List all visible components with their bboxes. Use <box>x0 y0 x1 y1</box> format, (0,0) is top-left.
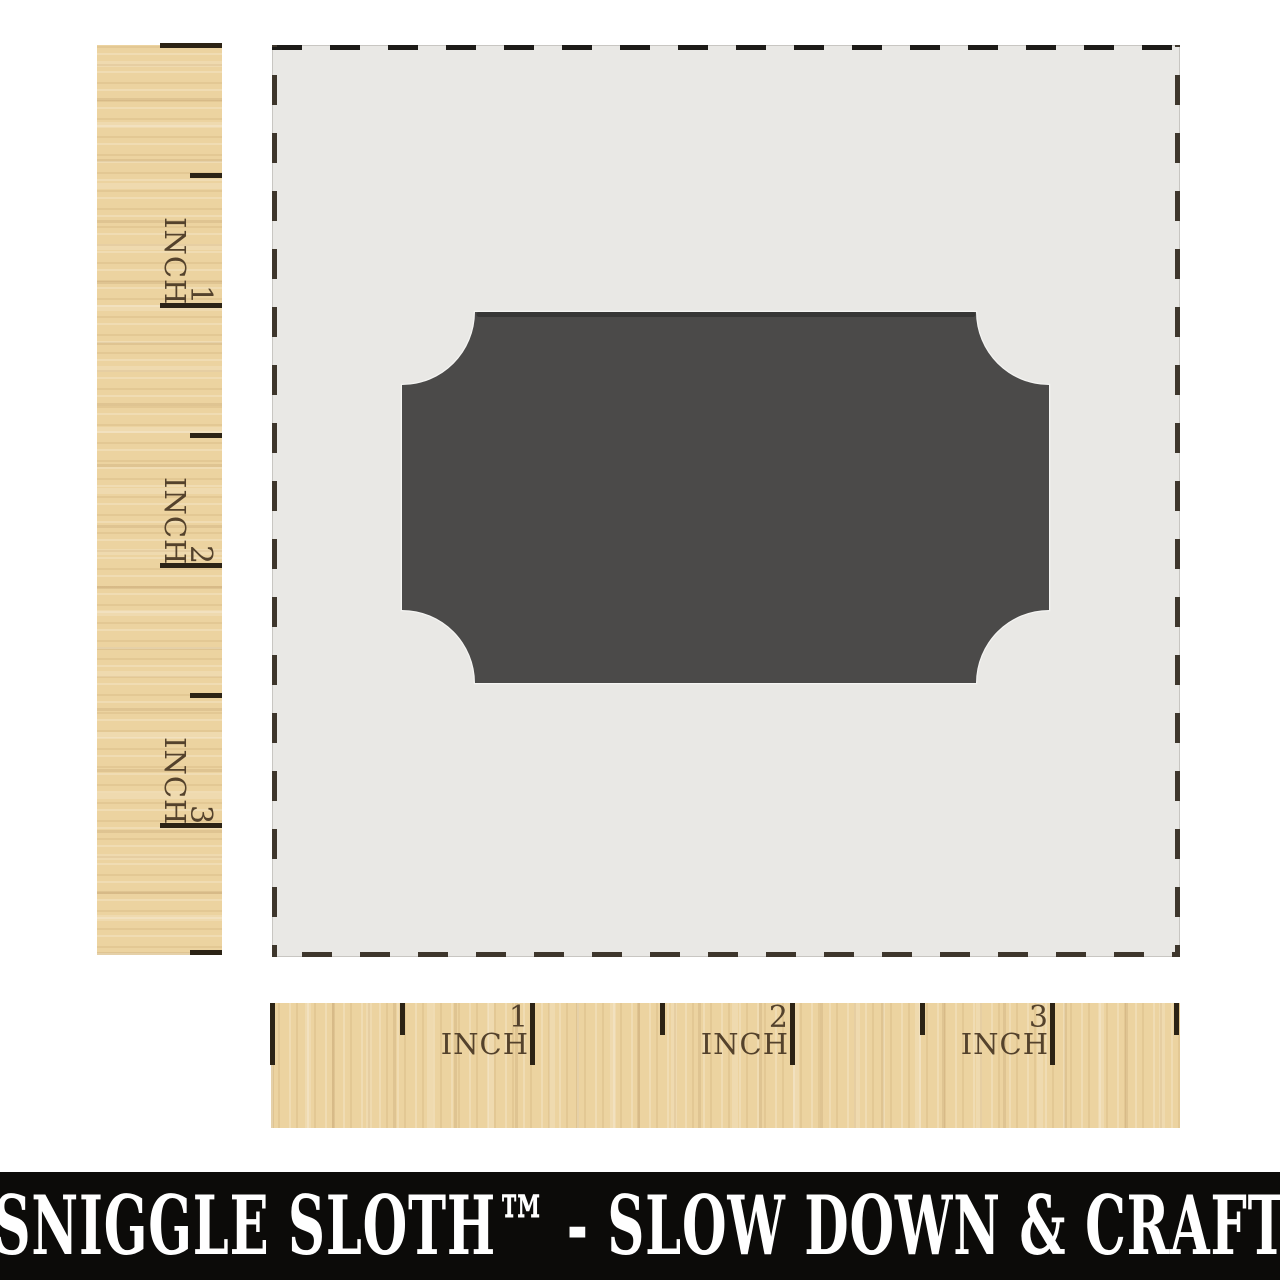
inch-tick-0 <box>160 43 222 48</box>
inch-unit: INCH <box>161 445 188 565</box>
inch-unit: INCH <box>647 1031 789 1058</box>
inch-unit: INCH <box>161 705 188 825</box>
inch-unit: INCH <box>387 1031 529 1058</box>
ruler-label-3-inch: 3 INCH <box>907 1005 1049 1058</box>
half-inch-tick <box>190 433 222 438</box>
brand-banner: SNIGGLE SLOTH™ - SLOW DOWN & CRAFT <box>0 1172 1280 1280</box>
stencil-sheet <box>272 45 1180 957</box>
horizontal-wood-ruler: 1 INCH 2 INCH 3 INCH <box>271 1003 1180 1128</box>
half-inch-tick <box>1174 1003 1179 1035</box>
stencil-product-photo: 1 INCH 2 INCH 3 INCH <box>0 0 1280 1280</box>
inch-tick-0 <box>270 1003 275 1065</box>
ruler-label-2-inch: 2 INCH <box>161 445 213 565</box>
half-inch-tick <box>190 173 222 178</box>
inch-tick-1 <box>530 1003 535 1065</box>
inch-unit: INCH <box>161 185 188 305</box>
ruler-label-1-inch: 1 INCH <box>387 1005 529 1058</box>
brand-text: SNIGGLE SLOTH™ - SLOW DOWN & CRAFT <box>0 1178 1280 1274</box>
inch-tick-2 <box>790 1003 795 1065</box>
vertical-wood-ruler: 1 INCH 2 INCH 3 INCH <box>97 45 222 955</box>
half-inch-tick <box>190 693 222 698</box>
ruler-label-2-inch: 2 INCH <box>647 1005 789 1058</box>
stencil-cut-lines <box>272 45 1180 957</box>
ruler-label-1-inch: 1 INCH <box>161 185 213 305</box>
ticket-shape-cutout <box>402 312 1049 683</box>
ruler-label-3-inch: 3 INCH <box>161 705 213 825</box>
inch-tick-3 <box>1050 1003 1055 1065</box>
half-inch-tick <box>190 950 222 955</box>
inch-unit: INCH <box>907 1031 1049 1058</box>
